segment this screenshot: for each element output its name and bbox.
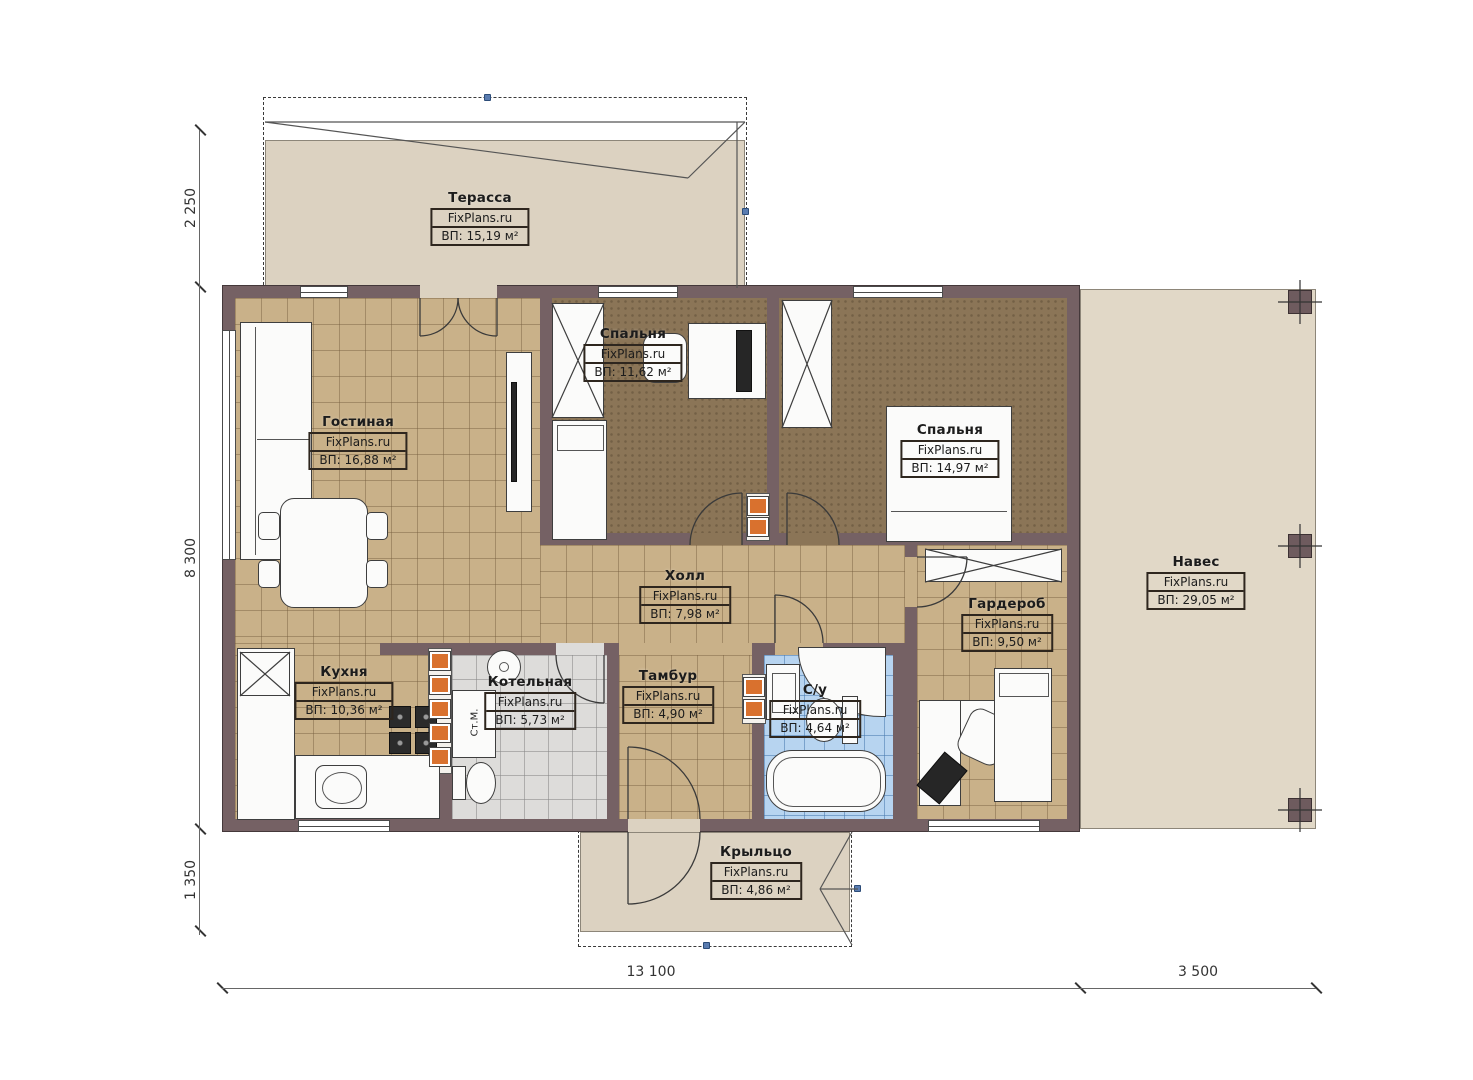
desk-bedroom1 bbox=[688, 323, 766, 399]
room-label-bathroom: С/у FixPlans.ru ВП: 4,64 м² bbox=[769, 682, 861, 738]
toilet-boiler-bowl bbox=[466, 762, 496, 804]
dimension-label-1350: 1 350 bbox=[183, 845, 199, 915]
brand-text: FixPlans.ru bbox=[963, 616, 1051, 632]
room-area: ВП: 4,90 м² bbox=[624, 704, 712, 722]
dimension-tick bbox=[194, 823, 206, 835]
room-name: Навес bbox=[1172, 554, 1219, 570]
room-name: Холл bbox=[665, 568, 705, 584]
window-bedroom1-top bbox=[598, 286, 678, 298]
brand-text: FixPlans.ru bbox=[641, 588, 729, 604]
door-opening-wardrobe bbox=[905, 557, 917, 607]
closet-bedroom2 bbox=[782, 300, 832, 428]
room-label-living: Гостиная FixPlans.ru ВП: 16,88 м² bbox=[308, 414, 407, 470]
room-name: Спальня bbox=[917, 422, 983, 438]
window-wardrobe-bottom bbox=[928, 820, 1040, 832]
dimension-label-8300: 8 300 bbox=[183, 523, 199, 593]
vent-cell bbox=[430, 748, 450, 766]
room-name: Крыльцо bbox=[720, 844, 792, 860]
dimension-label-3500: 3 500 bbox=[1163, 964, 1233, 980]
grip-handle bbox=[854, 885, 861, 892]
washing-machine-label: Ст.М. bbox=[469, 709, 480, 737]
dimension-tick bbox=[194, 925, 206, 937]
canopy-post bbox=[1288, 534, 1312, 558]
bed-bedroom1 bbox=[552, 420, 607, 540]
dimension-label-2250: 2 250 bbox=[183, 173, 199, 243]
wardrobe-unit bbox=[925, 549, 1062, 582]
grip-handle bbox=[703, 942, 710, 949]
room-label-tambour: Тамбур FixPlans.ru ВП: 4,90 м² bbox=[622, 668, 714, 724]
room-area: ВП: 29,05 м² bbox=[1148, 590, 1243, 608]
window-living-top bbox=[300, 286, 348, 298]
door-opening-boiler bbox=[556, 643, 604, 655]
brand-text: FixPlans.ru bbox=[624, 688, 712, 704]
bathtub bbox=[766, 750, 886, 812]
dining-chair bbox=[258, 560, 280, 588]
vent-cell bbox=[430, 724, 450, 742]
vent-cell bbox=[744, 678, 764, 696]
brand-text: FixPlans.ru bbox=[486, 694, 574, 710]
window-living-left bbox=[222, 330, 236, 560]
vent-cell bbox=[748, 518, 768, 536]
stove-burner bbox=[389, 732, 411, 754]
door-opening-bedroom2 bbox=[787, 533, 839, 545]
toilet-boiler-tank bbox=[452, 766, 466, 800]
room-name: Котельная bbox=[488, 674, 573, 690]
room-label-kitchen: Кухня FixPlans.ru ВП: 10,36 м² bbox=[294, 664, 393, 720]
room-name: Спальня bbox=[600, 326, 666, 342]
window-kitchen-bottom bbox=[298, 820, 390, 832]
hall-tambour-opening bbox=[619, 643, 752, 655]
room-label-boiler: Котельная FixPlans.ru ВП: 5,73 м² bbox=[484, 674, 576, 730]
monitor-bedroom1 bbox=[736, 330, 752, 392]
brand-text: FixPlans.ru bbox=[1148, 574, 1243, 590]
room-label-canopy: Навес FixPlans.ru ВП: 29,05 м² bbox=[1146, 554, 1245, 610]
room-area: ВП: 14,97 м² bbox=[902, 458, 997, 476]
dining-chair bbox=[258, 512, 280, 540]
brand-text: FixPlans.ru bbox=[771, 702, 859, 718]
room-label-bedroom2: Спальня FixPlans.ru ВП: 14,97 м² bbox=[900, 422, 999, 478]
dimension-line-left bbox=[199, 130, 200, 935]
bed-wardrobe bbox=[994, 668, 1052, 802]
dining-table bbox=[280, 498, 368, 608]
room-area: ВП: 10,36 м² bbox=[296, 700, 391, 718]
dimension-line-bottom-canopy bbox=[1080, 988, 1316, 989]
dining-chair bbox=[366, 560, 388, 588]
vent-cell bbox=[430, 676, 450, 694]
room-area: ВП: 15,19 м² bbox=[432, 226, 527, 244]
dimension-line-bottom-house bbox=[222, 988, 1080, 989]
room-label-wardrobe: Гардероб FixPlans.ru ВП: 9,50 м² bbox=[961, 596, 1053, 652]
grip-handle bbox=[484, 94, 491, 101]
tv-stand bbox=[506, 352, 532, 512]
window-bedroom2-top bbox=[853, 286, 943, 298]
door-opening-terrace bbox=[420, 285, 497, 298]
tv-screen bbox=[511, 382, 517, 482]
canopy-post bbox=[1288, 290, 1312, 314]
brand-text: FixPlans.ru bbox=[712, 864, 800, 880]
dimension-tick bbox=[194, 124, 206, 136]
dimension-label-13100: 13 100 bbox=[616, 964, 686, 980]
room-area: ВП: 5,73 м² bbox=[486, 710, 574, 728]
room-area: ВП: 4,86 м² bbox=[712, 880, 800, 898]
room-label-bedroom1: Спальня FixPlans.ru ВП: 11,62 м² bbox=[583, 326, 682, 382]
vent-cell bbox=[430, 652, 450, 670]
brand-text: FixPlans.ru bbox=[296, 684, 391, 700]
room-name: С/у bbox=[803, 682, 827, 698]
room-area: ВП: 4,64 м² bbox=[771, 718, 859, 736]
room-area: ВП: 7,98 м² bbox=[641, 604, 729, 622]
room-name: Кухня bbox=[320, 664, 368, 680]
room-label-hall: Холл FixPlans.ru ВП: 7,98 м² bbox=[639, 568, 731, 624]
brand-text: FixPlans.ru bbox=[432, 210, 527, 226]
kitchen-sink-cabinet bbox=[240, 652, 290, 696]
door-opening-bedroom1 bbox=[690, 533, 742, 545]
room-area: ВП: 11,62 м² bbox=[585, 362, 680, 380]
room-label-porch: Крыльцо FixPlans.ru ВП: 4,86 м² bbox=[710, 844, 802, 900]
canopy-post bbox=[1288, 798, 1312, 822]
grip-handle bbox=[742, 208, 749, 215]
kitchen-sink bbox=[315, 765, 367, 809]
vent-cell bbox=[430, 700, 450, 718]
room-name: Гардероб bbox=[968, 596, 1045, 612]
floor-plan: Ст.М. bbox=[0, 0, 1473, 1080]
brand-text: FixPlans.ru bbox=[902, 442, 997, 458]
dimension-tick bbox=[194, 281, 206, 293]
brand-text: FixPlans.ru bbox=[585, 346, 680, 362]
room-area: ВП: 16,88 м² bbox=[310, 450, 405, 468]
room-label-terrace: Терасса FixPlans.ru ВП: 15,19 м² bbox=[430, 190, 529, 246]
vent-cell bbox=[744, 700, 764, 718]
room-name: Терасса bbox=[448, 190, 512, 206]
room-area: ВП: 9,50 м² bbox=[963, 632, 1051, 650]
room-name: Гостиная bbox=[322, 414, 394, 430]
brand-text: FixPlans.ru bbox=[310, 434, 405, 450]
door-opening-porch bbox=[628, 819, 700, 832]
vent-cell bbox=[748, 497, 768, 515]
room-name: Тамбур bbox=[639, 668, 697, 684]
dining-chair bbox=[366, 512, 388, 540]
